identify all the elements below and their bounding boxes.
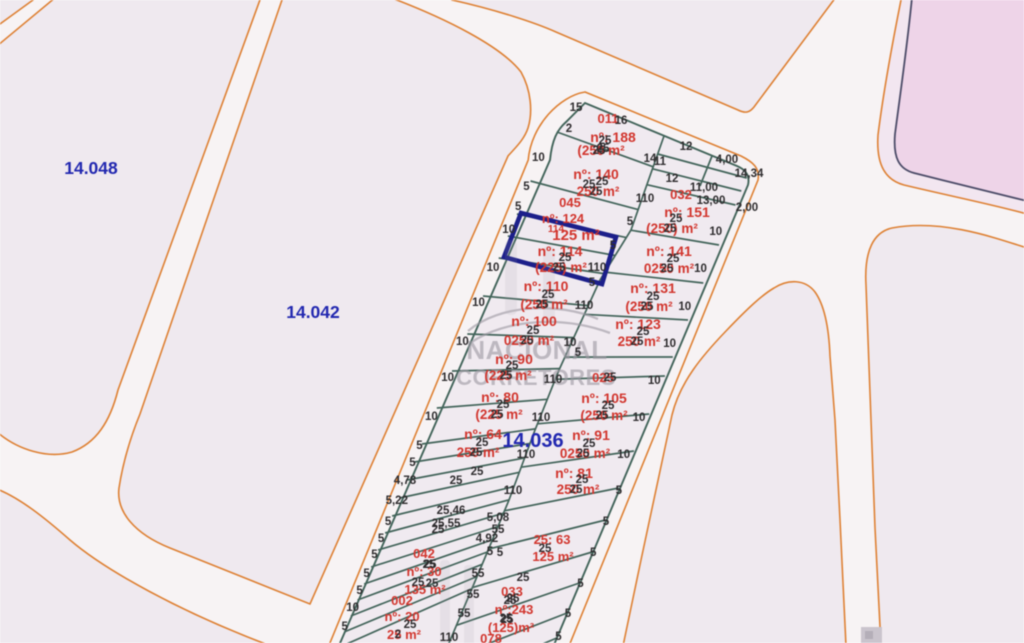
svg-text:2,00: 2,00 — [736, 202, 758, 214]
svg-text:55: 55 — [472, 568, 485, 580]
svg-text:5: 5 — [371, 549, 378, 561]
svg-text:10: 10 — [694, 263, 707, 275]
svg-text:10: 10 — [487, 262, 500, 274]
svg-text:25: 25 — [450, 475, 463, 487]
svg-text:10: 10 — [648, 375, 661, 387]
svg-text:10: 10 — [425, 411, 438, 423]
svg-text:25: 25 — [570, 484, 583, 496]
svg-text:5: 5 — [409, 457, 416, 469]
svg-text:10: 10 — [663, 338, 676, 350]
svg-text:5: 5 — [341, 621, 348, 633]
svg-text:110: 110 — [544, 374, 563, 386]
svg-text:5: 5 — [497, 547, 504, 559]
svg-text:25: 25 — [432, 524, 445, 536]
svg-text:5: 5 — [590, 547, 597, 559]
svg-text:14,34: 14,34 — [735, 168, 764, 180]
svg-text:5: 5 — [577, 578, 584, 590]
svg-text:110: 110 — [504, 485, 523, 497]
svg-text:10: 10 — [709, 226, 722, 238]
svg-text:25: 25 — [404, 619, 417, 631]
svg-text:5: 5 — [363, 568, 370, 580]
svg-text:13,00: 13,00 — [697, 195, 726, 207]
svg-text:5: 5 — [523, 181, 530, 193]
svg-text:5: 5 — [356, 585, 363, 597]
svg-text:2: 2 — [566, 123, 572, 135]
svg-text:55: 55 — [458, 608, 471, 620]
svg-text:12: 12 — [666, 173, 679, 185]
svg-text:5: 5 — [416, 440, 423, 452]
svg-text:25: 25 — [423, 559, 436, 571]
svg-text:110: 110 — [532, 412, 551, 424]
svg-text:25: 25 — [517, 572, 530, 584]
svg-text:110: 110 — [440, 632, 459, 643]
svg-text:10: 10 — [617, 449, 630, 461]
svg-text:25: 25 — [412, 577, 425, 589]
svg-text:5: 5 — [565, 608, 572, 620]
svg-text:25: 25 — [500, 370, 513, 382]
svg-text:12: 12 — [680, 141, 693, 153]
svg-text:25: 25 — [553, 262, 566, 274]
svg-text:5: 5 — [575, 347, 582, 359]
svg-text:032: 032 — [670, 187, 692, 202]
svg-text:25: 25 — [583, 179, 596, 191]
svg-text:5: 5 — [515, 201, 522, 213]
svg-text:25: 25 — [470, 447, 483, 459]
svg-text:25: 25 — [597, 143, 610, 155]
svg-text:078: 078 — [480, 631, 502, 643]
svg-text:25: 25 — [507, 593, 520, 605]
svg-text:25: 25 — [664, 223, 677, 235]
svg-text:25: 25 — [491, 409, 504, 421]
svg-text:10: 10 — [633, 412, 646, 424]
svg-text:25: 25 — [577, 448, 590, 460]
svg-text:55: 55 — [467, 589, 480, 601]
svg-text:25: 25 — [521, 335, 534, 347]
svg-text:10: 10 — [441, 372, 454, 384]
svg-text:14.048: 14.048 — [64, 158, 118, 178]
svg-text:25: 25 — [426, 578, 439, 590]
svg-text:5,22: 5,22 — [386, 495, 408, 507]
svg-text:15: 15 — [570, 102, 583, 114]
svg-text:110: 110 — [588, 262, 607, 274]
svg-text:25: 25 — [631, 336, 644, 348]
svg-text:2: 2 — [395, 629, 401, 641]
svg-text:10: 10 — [502, 224, 515, 236]
svg-text:25: 25 — [471, 466, 484, 478]
svg-text:10: 10 — [456, 336, 469, 348]
svg-text:14: 14 — [644, 153, 657, 165]
svg-text:5: 5 — [555, 631, 562, 643]
svg-text:110: 110 — [575, 300, 594, 312]
svg-text:10: 10 — [472, 297, 485, 309]
svg-text:25: 25 — [604, 372, 617, 384]
svg-text:5: 5 — [589, 277, 596, 289]
svg-text:5: 5 — [378, 533, 385, 545]
svg-text:4,92: 4,92 — [476, 533, 498, 545]
svg-text:25: 25 — [500, 613, 513, 625]
svg-text:4,78: 4,78 — [394, 475, 417, 487]
svg-text:4,00: 4,00 — [716, 154, 738, 166]
svg-text:16: 16 — [615, 115, 628, 127]
svg-text:10: 10 — [678, 301, 691, 313]
svg-text:110: 110 — [636, 193, 655, 205]
svg-text:10: 10 — [532, 152, 545, 164]
svg-text:5: 5 — [616, 485, 623, 497]
svg-text:5: 5 — [610, 240, 617, 252]
svg-text:25,46: 25,46 — [437, 505, 466, 517]
svg-text:5,08: 5,08 — [487, 512, 510, 524]
svg-text:125 m²: 125 m² — [552, 227, 600, 244]
svg-text:11,00: 11,00 — [690, 182, 718, 194]
svg-text:14.042: 14.042 — [286, 302, 340, 322]
svg-text:045: 045 — [559, 195, 581, 210]
svg-text:25: 25 — [661, 263, 674, 275]
svg-text:25: 25 — [641, 301, 654, 313]
svg-text:25: 25 — [596, 410, 609, 422]
svg-text:5: 5 — [627, 216, 634, 228]
svg-text:25: 25 — [539, 543, 552, 555]
svg-text:5: 5 — [487, 546, 494, 558]
svg-text:10: 10 — [346, 602, 359, 614]
svg-text:002: 002 — [391, 593, 413, 608]
svg-text:25: 25 — [536, 299, 549, 311]
svg-text:5: 5 — [385, 516, 392, 528]
svg-text:110: 110 — [517, 449, 536, 461]
svg-text:5: 5 — [603, 516, 610, 528]
